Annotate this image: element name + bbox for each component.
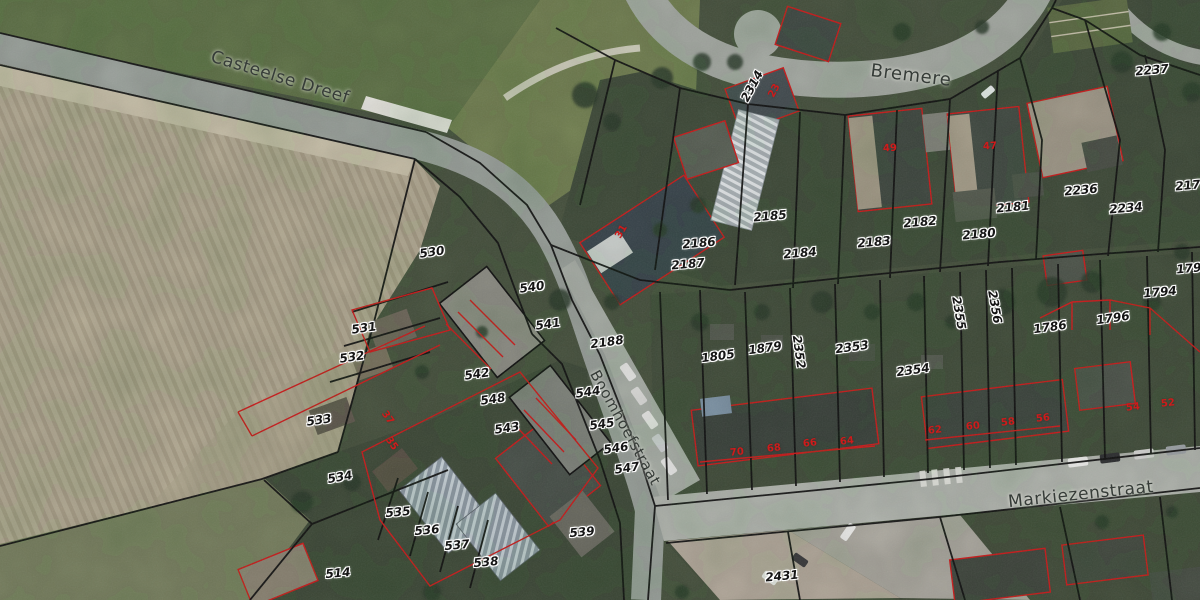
parcel-number-label: 544 xyxy=(575,384,601,399)
parcel-number-label: 2352 xyxy=(791,335,808,370)
house-number-label: 62 xyxy=(928,425,943,436)
parcel-number-label: 2234 xyxy=(1109,201,1143,216)
house-number-label: 31 xyxy=(614,223,630,240)
parcel-number-label: 2182 xyxy=(903,215,937,230)
parcel-number-label: 2181 xyxy=(996,200,1030,215)
parcel-number-label: 1796 xyxy=(1096,310,1131,327)
house-number-label: 52 xyxy=(1161,398,1176,409)
house-number-label: 49 xyxy=(883,144,897,155)
street-name-label: Markiezenstraat xyxy=(1007,479,1154,511)
parcel-number-label: 546 xyxy=(603,440,629,455)
parcel-number-label: 548 xyxy=(480,391,506,406)
parcel-number-label: 2354 xyxy=(896,362,931,379)
house-number-label: 70 xyxy=(730,447,745,458)
parcel-number-label: 2184 xyxy=(783,246,817,261)
parcel-number-label: 2183 xyxy=(857,235,891,250)
street-name-label: Bremere xyxy=(870,62,953,90)
parcel-number-label: 2431 xyxy=(765,569,799,584)
house-number-label: 64 xyxy=(840,436,855,447)
house-number-label: 35 xyxy=(383,435,399,452)
parcel-number-label: 1786 xyxy=(1033,319,1068,336)
parcel-number-label: 538 xyxy=(473,555,499,569)
parcel-number-label: 2236 xyxy=(1064,183,1098,198)
parcel-number-label: 2355 xyxy=(950,296,968,331)
parcel-number-label: 539 xyxy=(569,525,595,539)
house-number-label: 47 xyxy=(983,142,997,153)
map-labels: Casteelse DreefBremereBoomhoefstraatMark… xyxy=(0,0,1200,600)
parcel-number-label: 2188 xyxy=(590,334,625,351)
aerial-cadastral-map[interactable]: Casteelse DreefBremereBoomhoefstraatMark… xyxy=(0,0,1200,600)
parcel-number-label: 530 xyxy=(419,244,445,259)
house-number-label: 60 xyxy=(966,421,981,432)
parcel-number-label: 537 xyxy=(444,538,470,552)
street-name-label: Boomhoefstraat xyxy=(587,368,663,488)
parcel-number-label: 532 xyxy=(339,349,365,364)
parcel-number-label: 541 xyxy=(535,316,561,331)
parcel-number-label: 2186 xyxy=(682,236,716,251)
parcel-number-label: 2185 xyxy=(753,209,787,224)
parcel-number-label: 533 xyxy=(306,412,332,427)
parcel-number-label: 1794 xyxy=(1143,285,1177,300)
parcel-number-label: 2356 xyxy=(986,290,1004,325)
parcel-number-label: 536 xyxy=(414,523,440,537)
parcel-number-label: 514 xyxy=(325,566,351,580)
parcel-number-label: 2180 xyxy=(962,227,996,242)
parcel-number-label: 2353 xyxy=(835,339,870,356)
parcel-number-label: 535 xyxy=(385,505,411,519)
house-number-label: 23 xyxy=(767,83,782,100)
parcel-number-label: 2187 xyxy=(671,257,705,272)
parcel-number-label: 534 xyxy=(327,469,354,485)
parcel-number-label: 547 xyxy=(614,460,640,475)
parcel-number-label: 531 xyxy=(351,320,377,335)
parcel-number-label: 542 xyxy=(464,366,490,381)
parcel-number-label: 1795 xyxy=(1176,261,1200,276)
house-number-label: 56 xyxy=(1036,413,1051,424)
house-number-label: 58 xyxy=(1001,417,1016,428)
parcel-number-label: 1879 xyxy=(748,340,783,357)
parcel-number-label: 1805 xyxy=(701,348,736,365)
parcel-number-label: 543 xyxy=(494,420,520,435)
house-number-label: 68 xyxy=(767,443,782,454)
street-name-label: Casteelse Dreef xyxy=(209,49,351,107)
parcel-number-label: 545 xyxy=(589,416,615,431)
parcel-number-label: 540 xyxy=(519,279,545,294)
parcel-number-label: 2314 xyxy=(739,68,765,103)
house-number-label: 54 xyxy=(1126,402,1141,413)
parcel-number-label: 2237 xyxy=(1135,63,1169,78)
parcel-number-label: 2179 xyxy=(1175,178,1200,193)
house-number-label: 66 xyxy=(803,438,818,449)
house-number-label: 37 xyxy=(379,409,395,426)
